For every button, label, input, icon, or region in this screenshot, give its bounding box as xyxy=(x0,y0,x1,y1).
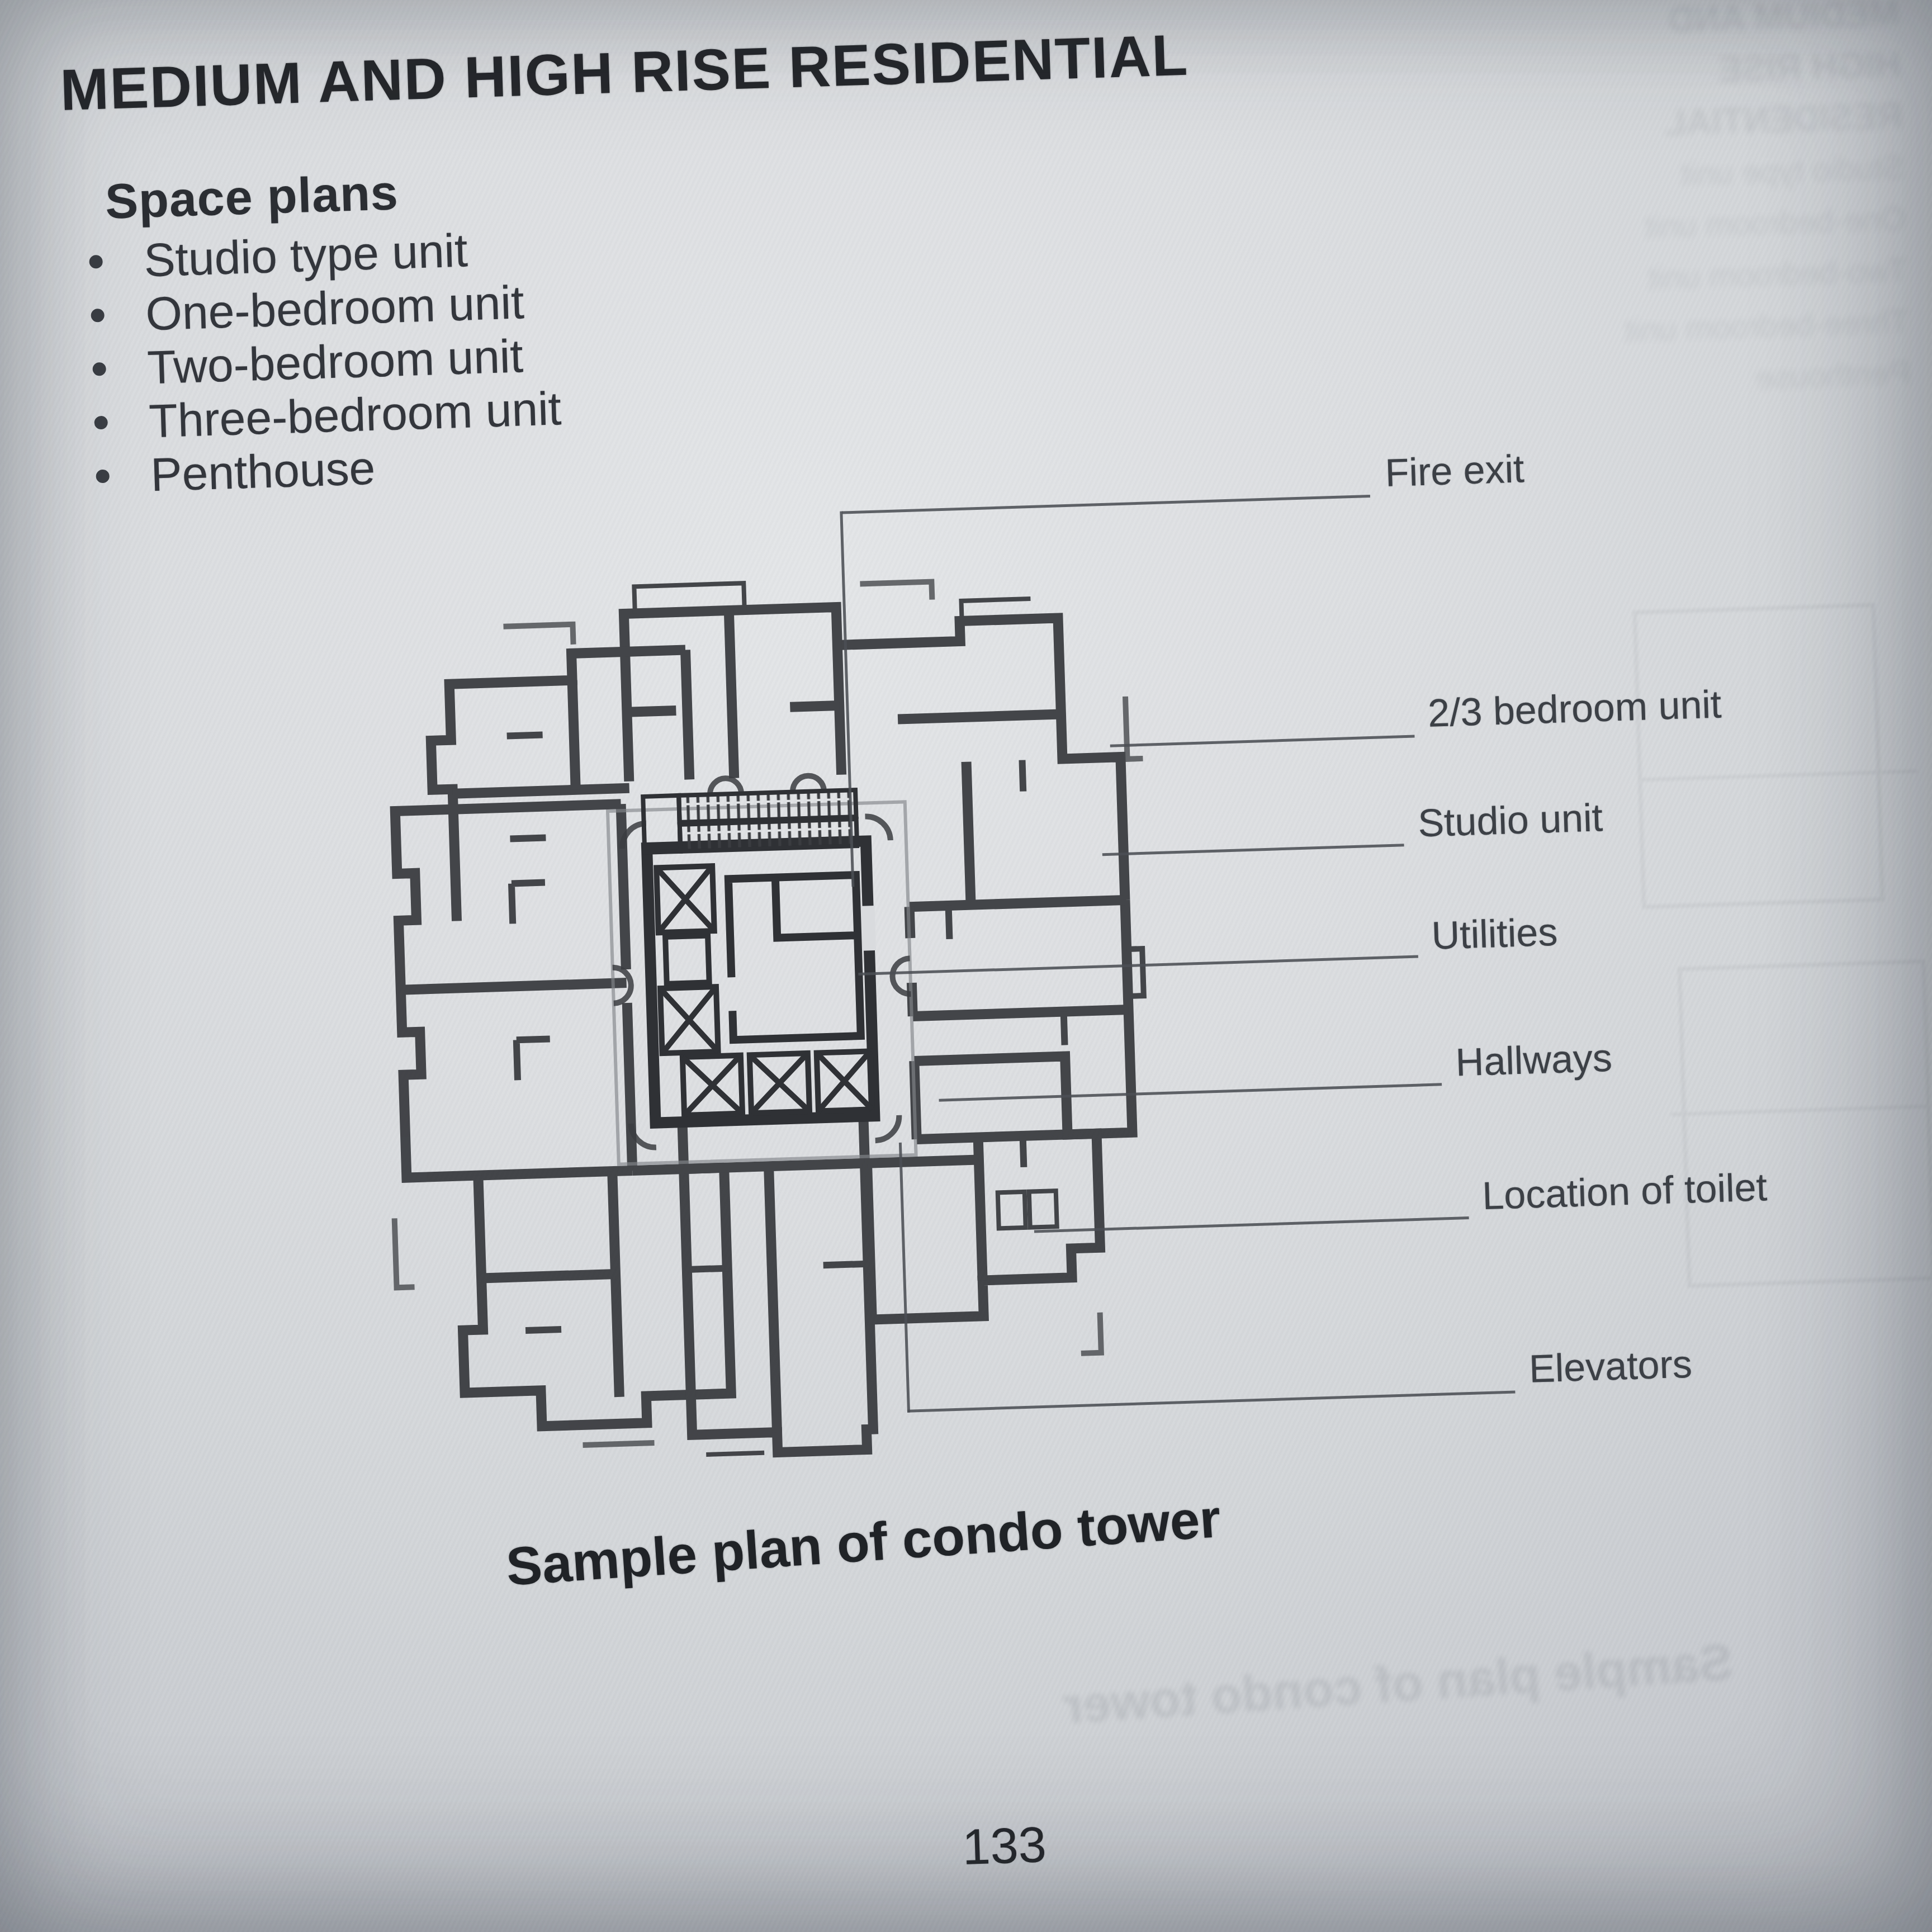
bleed-through-plan-fragment xyxy=(1671,1105,1928,1116)
page-tilt-container: MEDIUM AND HIGH RISE RESIDENTIAL Space p… xyxy=(0,0,1932,1932)
plan-label-hallways: Hallways xyxy=(1455,1035,1613,1085)
utility-room xyxy=(728,875,861,1040)
page-number: 133 xyxy=(962,1816,1047,1876)
central-core xyxy=(643,790,874,1123)
plan-label-fire-exit: Fire exit xyxy=(1384,446,1524,495)
unit-top-left xyxy=(428,650,694,921)
plan-label-studio-unit: Studio unit xyxy=(1417,795,1603,845)
elevator-bank-left xyxy=(656,866,718,1053)
bleed-through-plan-fragment xyxy=(1638,769,1917,782)
unit-left-middle xyxy=(395,804,632,1177)
bleed-through-caption: Sample plan of condo tower xyxy=(894,1633,1735,1746)
leader-line-fire-exit xyxy=(842,495,1370,514)
plan-caption: Sample plan of condo tower xyxy=(504,1479,1345,1598)
unit-top-center xyxy=(623,580,841,782)
unit-top-right xyxy=(841,596,1125,908)
unit-bottom-center xyxy=(683,1121,874,1455)
bullet-icon xyxy=(96,470,110,484)
photographed-book-page: MEDIUM AND HIGH RISE RESIDENTIAL Space p… xyxy=(0,0,1932,1932)
unit-outlines xyxy=(389,571,1158,1464)
bullet-icon xyxy=(94,416,108,430)
list-item-label: Penthouse xyxy=(150,441,376,502)
bleed-through-heading: MEDIUM AND HIGH RISE RESIDENTIAL Studio … xyxy=(1608,0,1911,408)
toilet-fixture xyxy=(998,1192,1026,1228)
bleed-through-plan-fragment xyxy=(1633,603,1885,909)
plan-label-bedroom-unit: 2/3 bedroom unit xyxy=(1427,681,1722,735)
unit-right-block xyxy=(910,899,1148,1139)
floor-plan-svg xyxy=(333,520,1346,1472)
elevator-bank-bottom xyxy=(683,1051,872,1115)
bleed-through-title-text: MEDIUM AND HIGH RISE RESIDENTIAL xyxy=(1608,0,1903,150)
bleed-through-plan-fragment xyxy=(1678,959,1932,1288)
floor-plan xyxy=(333,520,1346,1472)
page-title: MEDIUM AND HIGH RISE RESIDENTIAL xyxy=(59,11,1514,124)
plan-label-elevators: Elevators xyxy=(1528,1342,1693,1391)
bullet-icon xyxy=(92,362,106,376)
plan-label-utilities: Utilities xyxy=(1431,910,1558,958)
space-plans-list: Studio type unit One-bedroom unit Two-be… xyxy=(88,220,563,503)
space-plans-heading: Space plans xyxy=(105,164,400,230)
toilet-fixture xyxy=(1029,1191,1057,1227)
plan-label-toilet: Location of toilet xyxy=(1481,1164,1768,1218)
bullet-icon xyxy=(89,255,103,269)
bullet-icon xyxy=(91,309,105,323)
